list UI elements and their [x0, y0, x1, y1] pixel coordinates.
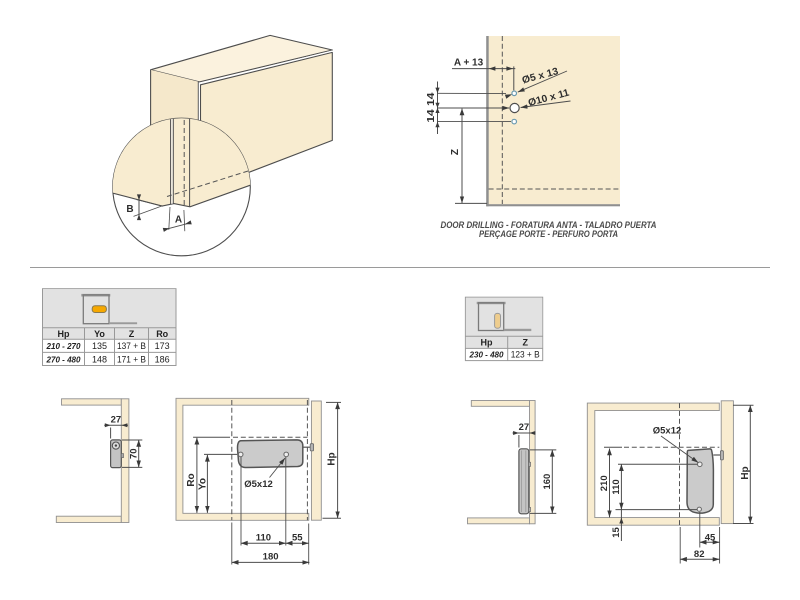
- svg-text:230 - 480: 230 - 480: [469, 350, 504, 360]
- svg-text:A: A: [175, 215, 182, 226]
- svg-text:Z: Z: [129, 329, 135, 339]
- svg-text:270 - 480: 270 - 480: [46, 354, 81, 364]
- svg-text:110: 110: [611, 479, 622, 494]
- svg-text:Ø5x12: Ø5x12: [653, 426, 682, 437]
- svg-text:110: 110: [256, 532, 271, 543]
- svg-text:173: 173: [155, 341, 170, 351]
- svg-text:Hp: Hp: [327, 452, 338, 465]
- svg-text:Hp: Hp: [740, 466, 751, 479]
- svg-text:171 + B: 171 + B: [117, 354, 146, 364]
- svg-text:137 + B: 137 + B: [117, 341, 146, 351]
- svg-text:B: B: [126, 204, 133, 215]
- svg-text:27: 27: [519, 422, 530, 433]
- svg-text:14 14: 14 14: [426, 92, 437, 123]
- svg-text:Ø5x12: Ø5x12: [244, 479, 273, 490]
- svg-text:55: 55: [292, 532, 303, 543]
- svg-text:Ro: Ro: [186, 473, 197, 486]
- svg-text:27: 27: [111, 414, 122, 425]
- svg-text:Hp: Hp: [481, 337, 493, 347]
- svg-text:148: 148: [92, 354, 107, 364]
- svg-text:123 + B: 123 + B: [511, 350, 540, 360]
- svg-text:180: 180: [263, 552, 279, 563]
- svg-text:Z: Z: [522, 337, 528, 347]
- svg-text:Ro: Ro: [156, 329, 168, 339]
- svg-text:Hp: Hp: [58, 329, 70, 339]
- svg-text:135: 135: [92, 341, 107, 351]
- svg-text:186: 186: [155, 354, 170, 364]
- svg-text:Yo: Yo: [94, 329, 105, 339]
- svg-text:160: 160: [542, 474, 553, 490]
- svg-text:Z: Z: [450, 149, 461, 155]
- svg-text:A + 13: A + 13: [454, 58, 484, 69]
- svg-text:82: 82: [694, 549, 705, 560]
- svg-text:Yo: Yo: [197, 478, 208, 490]
- svg-text:210: 210: [599, 475, 610, 491]
- svg-text:70: 70: [129, 448, 140, 459]
- svg-text:210 - 270: 210 - 270: [46, 341, 81, 351]
- svg-text:15: 15: [611, 527, 622, 538]
- svg-text:PERÇAGE PORTE - PERFURO PORTA: PERÇAGE PORTE - PERFURO PORTA: [479, 229, 618, 240]
- svg-text:45: 45: [705, 533, 716, 544]
